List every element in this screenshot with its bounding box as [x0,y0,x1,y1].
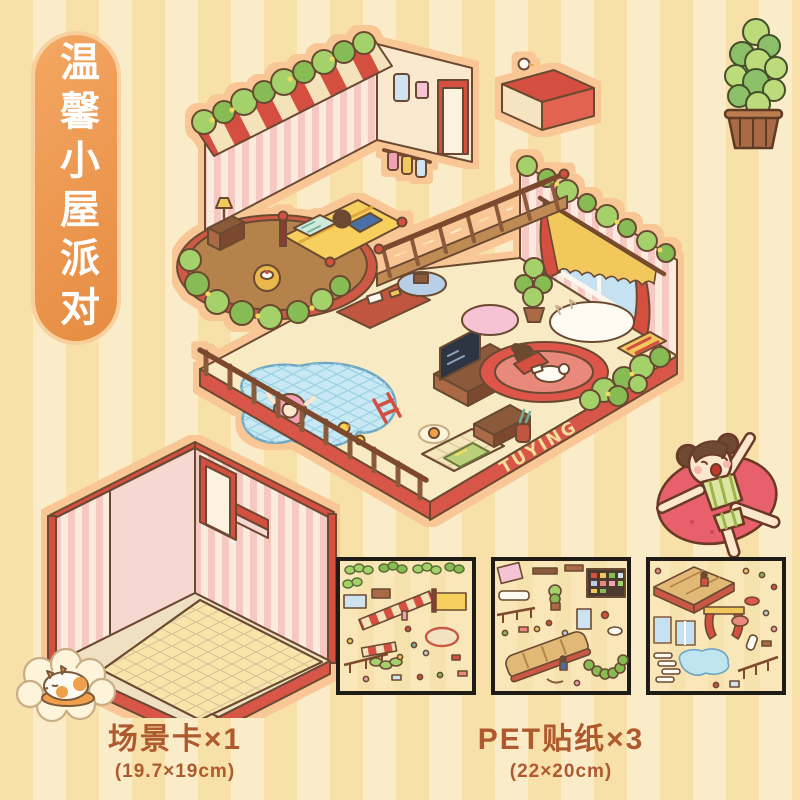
stickers-caption-size: (22×20cm) [441,761,681,783]
title-ribbon-text: 温馨小屋派对 [56,41,96,335]
stickers-caption-label: PET贴纸×3 [441,714,681,758]
stickers-caption: PET贴纸×3 (22×20cm) [441,714,681,783]
potted-plant-icon [706,10,800,155]
sheet1-bed [432,589,466,612]
sticker-sheet-1 [336,557,476,695]
sticker-sheet-2 [491,557,631,695]
scene-card-caption-label: 场景卡×1 [55,714,295,758]
sheet2-plant [549,585,561,610]
sheet1-mini-figure [402,611,407,620]
sheet2-vending [577,609,591,629]
clothes-rack [384,150,430,177]
sheet3-pool-shape [679,649,728,675]
top-balcony [502,59,594,131]
sheet2-mini-figure [560,656,567,670]
bird-icon [519,59,536,70]
sheet2-bulletin-board [587,569,625,597]
sheet3-round-rug [732,616,748,626]
scene-card-caption: 场景卡×1 (19.7×19cm) [55,714,295,783]
title-ribbon-badge: 温馨小屋派对 [35,35,117,341]
sheet3-mini-figure [701,572,708,586]
swim-ring-girl-icon [632,412,797,562]
scene-left-wall-striped [55,491,110,664]
pink-blanket [462,305,518,335]
sheet1-picture [344,595,366,608]
dollhouse-illustration: TUYING [172,22,687,527]
sticker-sheet-3 [646,557,786,695]
product-photo-canvas: 温馨小屋派对 [0,0,800,800]
sheet1-dresser [372,589,390,598]
sheet1-rug [426,628,458,646]
sheet2-bench [499,591,529,600]
sheet2-shelf [533,568,557,574]
balcony-table [254,265,280,291]
wardrobe-back-wall [377,44,472,162]
cat-bed-cloud [419,425,449,443]
scene-card-caption-size: (19.7×19cm) [55,761,295,783]
